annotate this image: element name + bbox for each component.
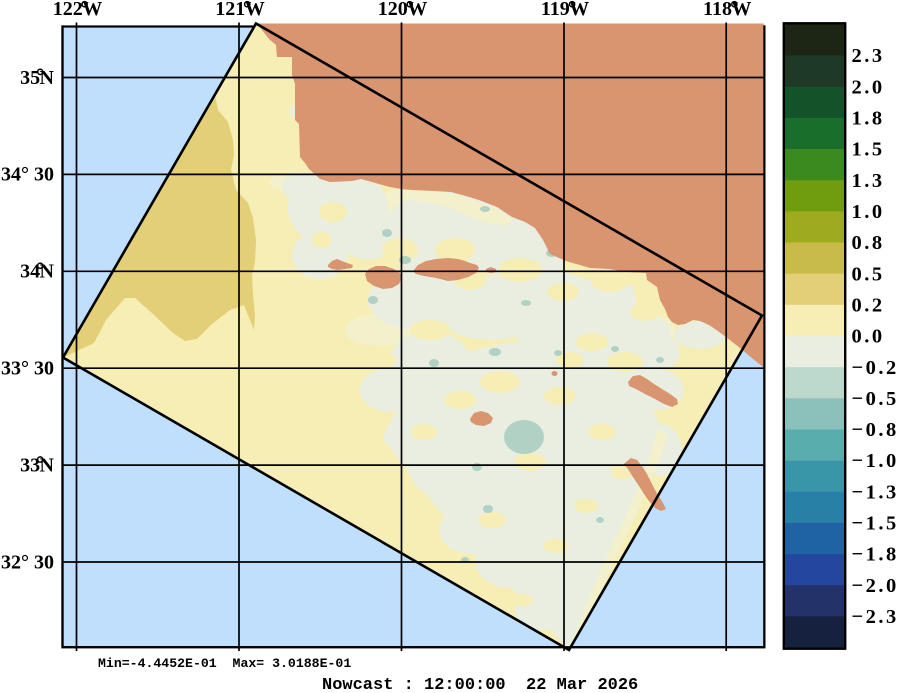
svg-text:33° 30: 33° 30 xyxy=(1,358,54,380)
svg-text:120W: 120W xyxy=(378,0,427,20)
svg-text:1.5: 1.5 xyxy=(852,139,885,161)
svg-text:2.0: 2.0 xyxy=(852,76,885,98)
svg-text:−1.8: −1.8 xyxy=(852,544,899,566)
svg-text:34N: 34N xyxy=(20,261,54,283)
svg-text:Nowcast : 12:00:00 22 Mar 202: Nowcast : 12:00:00 22 Mar 2026 xyxy=(322,676,638,693)
svg-text:2.3: 2.3 xyxy=(852,45,885,67)
svg-text:119W: 119W xyxy=(541,0,589,20)
svg-text:32° 30: 32° 30 xyxy=(1,551,54,573)
svg-text:−1.0: −1.0 xyxy=(852,450,899,472)
svg-text:0.0: 0.0 xyxy=(852,326,885,348)
svg-text:0.8: 0.8 xyxy=(852,232,885,254)
svg-text:−1.5: −1.5 xyxy=(852,513,899,535)
svg-text:−0.8: −0.8 xyxy=(852,419,899,441)
svg-text:35N: 35N xyxy=(20,67,54,89)
svg-text:118W: 118W xyxy=(703,0,751,20)
svg-text:−2.0: −2.0 xyxy=(852,575,899,597)
svg-text:1.0: 1.0 xyxy=(852,201,885,223)
svg-text:1.3: 1.3 xyxy=(852,170,885,192)
svg-text:−1.3: −1.3 xyxy=(852,481,899,503)
svg-text:−2.3: −2.3 xyxy=(852,606,899,628)
svg-text:Min=-4.4452E-01 Max= 3.0188E-: Min=-4.4452E-01 Max= 3.0188E-01 xyxy=(98,656,351,671)
svg-text:−0.2: −0.2 xyxy=(852,357,899,379)
svg-text:34° 30: 34° 30 xyxy=(1,164,54,186)
svg-text:−0.5: −0.5 xyxy=(852,388,899,410)
svg-text:1.8: 1.8 xyxy=(852,108,885,130)
svg-text:122W: 122W xyxy=(53,0,102,20)
svg-text:0.5: 0.5 xyxy=(852,263,885,285)
svg-text:0.2: 0.2 xyxy=(852,294,885,316)
svg-text:121W: 121W xyxy=(215,0,264,20)
svg-text:33N: 33N xyxy=(20,454,54,476)
